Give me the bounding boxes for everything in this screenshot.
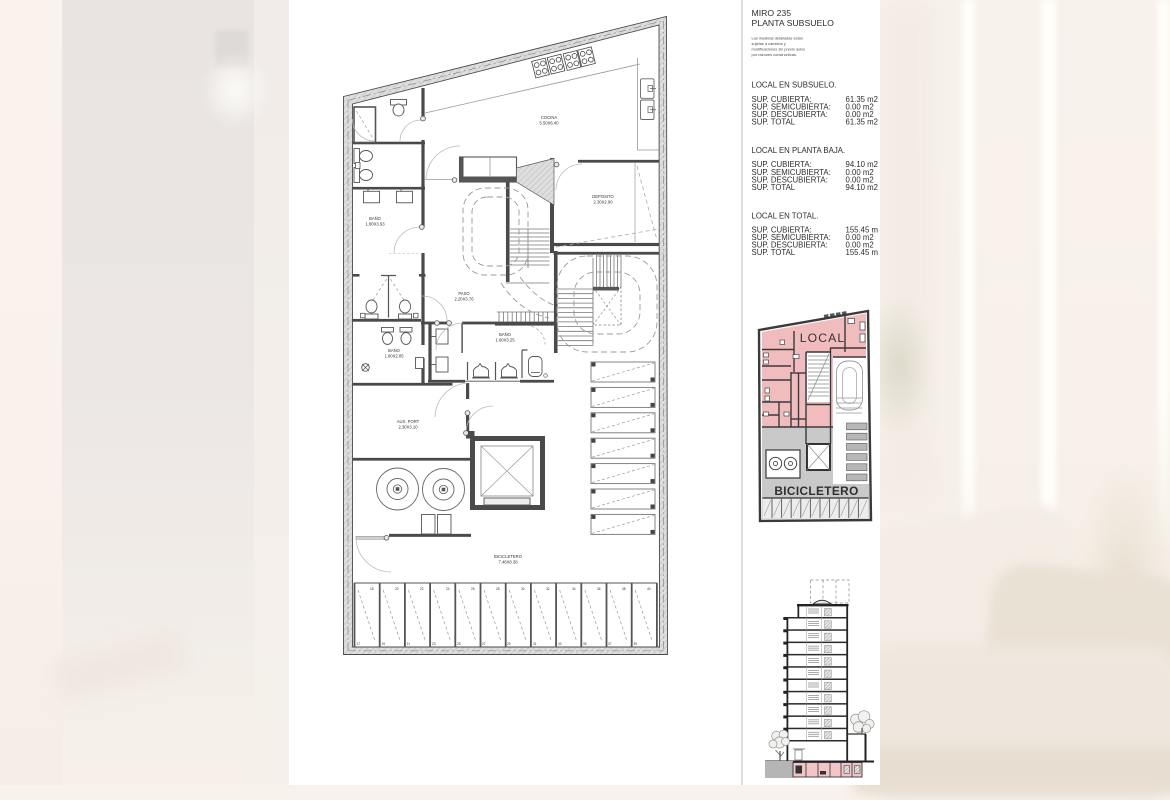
svg-text:31: 31 — [533, 642, 537, 646]
svg-text:COCINA: COCINA — [541, 115, 557, 120]
svg-text:23: 23 — [432, 642, 436, 646]
svg-text:DEPOSITO: DEPOSITO — [592, 194, 614, 199]
svg-text:36: 36 — [597, 587, 601, 591]
svg-text:27: 27 — [482, 642, 486, 646]
svg-text:34: 34 — [572, 587, 576, 591]
svg-text:SUP. TOTAL: SUP. TOTAL — [752, 248, 796, 257]
svg-text:SUP. TOTAL: SUP. TOTAL — [752, 118, 796, 127]
svg-text:26: 26 — [471, 587, 475, 591]
svg-text:40: 40 — [647, 587, 651, 591]
svg-text:BAÑO: BAÑO — [369, 216, 382, 221]
svg-text:30: 30 — [521, 587, 525, 591]
svg-text:LOCAL EN PLANTA BAJA.: LOCAL EN PLANTA BAJA. — [752, 146, 846, 155]
svg-text:LOCAL EN SUBSUELO.: LOCAL EN SUBSUELO. — [752, 80, 837, 89]
svg-text:155.45 m: 155.45 m — [846, 248, 879, 257]
svg-text:BAÑO: BAÑO — [499, 332, 512, 337]
svg-text:24: 24 — [446, 587, 450, 591]
svg-text:2.30X3.10: 2.30X3.10 — [398, 425, 418, 430]
svg-text:20: 20 — [395, 587, 399, 591]
svg-text:PASO: PASO — [458, 291, 470, 296]
svg-text:por razones constructivas.: por razones constructivas. — [752, 52, 797, 57]
svg-text:BICICLETERO: BICICLETERO — [494, 554, 523, 559]
svg-text:7.46X8.38: 7.46X8.38 — [498, 560, 518, 565]
svg-text:94.10 m2: 94.10 m2 — [846, 183, 879, 192]
svg-text:AUX. PORT: AUX. PORT — [397, 419, 420, 424]
svg-text:25: 25 — [457, 642, 461, 646]
svg-text:18: 18 — [370, 587, 374, 591]
svg-text:MIRO 235: MIRO 235 — [752, 8, 792, 18]
svg-text:22: 22 — [420, 587, 424, 591]
svg-text:5.50X6.40: 5.50X6.40 — [539, 121, 559, 126]
svg-text:sujetas a cambios y: sujetas a cambios y — [752, 41, 786, 46]
svg-text:BICICLETERO: BICICLETERO — [774, 484, 858, 498]
svg-text:35: 35 — [583, 642, 587, 646]
svg-text:21: 21 — [407, 642, 411, 646]
svg-text:LOCAL EN TOTAL.: LOCAL EN TOTAL. — [752, 212, 819, 221]
svg-text:37: 37 — [608, 642, 612, 646]
svg-text:PLANTA SUBSUELO: PLANTA SUBSUELO — [752, 18, 835, 28]
svg-text:61.35 m2: 61.35 m2 — [846, 118, 879, 127]
svg-text:LOCAL: LOCAL — [800, 331, 845, 345]
svg-text:32: 32 — [546, 587, 550, 591]
svg-text:1.80X3.93: 1.80X3.93 — [365, 222, 385, 227]
svg-text:28: 28 — [496, 587, 500, 591]
svg-text:29: 29 — [507, 642, 511, 646]
svg-text:39: 39 — [634, 642, 638, 646]
svg-text:2.20X3.76: 2.20X3.76 — [454, 297, 474, 302]
svg-text:modificaciones sin previo avis: modificaciones sin previo aviso — [752, 46, 806, 51]
svg-text:SUP. TOTAL: SUP. TOTAL — [752, 183, 796, 192]
svg-text:19: 19 — [382, 642, 386, 646]
svg-text:1.60X2.05: 1.60X2.05 — [384, 354, 404, 359]
svg-text:33: 33 — [558, 642, 562, 646]
svg-text:BAÑO: BAÑO — [388, 348, 401, 353]
svg-text:2.30X2.90: 2.30X2.90 — [593, 200, 613, 205]
svg-text:17: 17 — [357, 642, 361, 646]
svg-text:1.60X3.25: 1.60X3.25 — [495, 338, 515, 343]
svg-text:38: 38 — [622, 587, 626, 591]
